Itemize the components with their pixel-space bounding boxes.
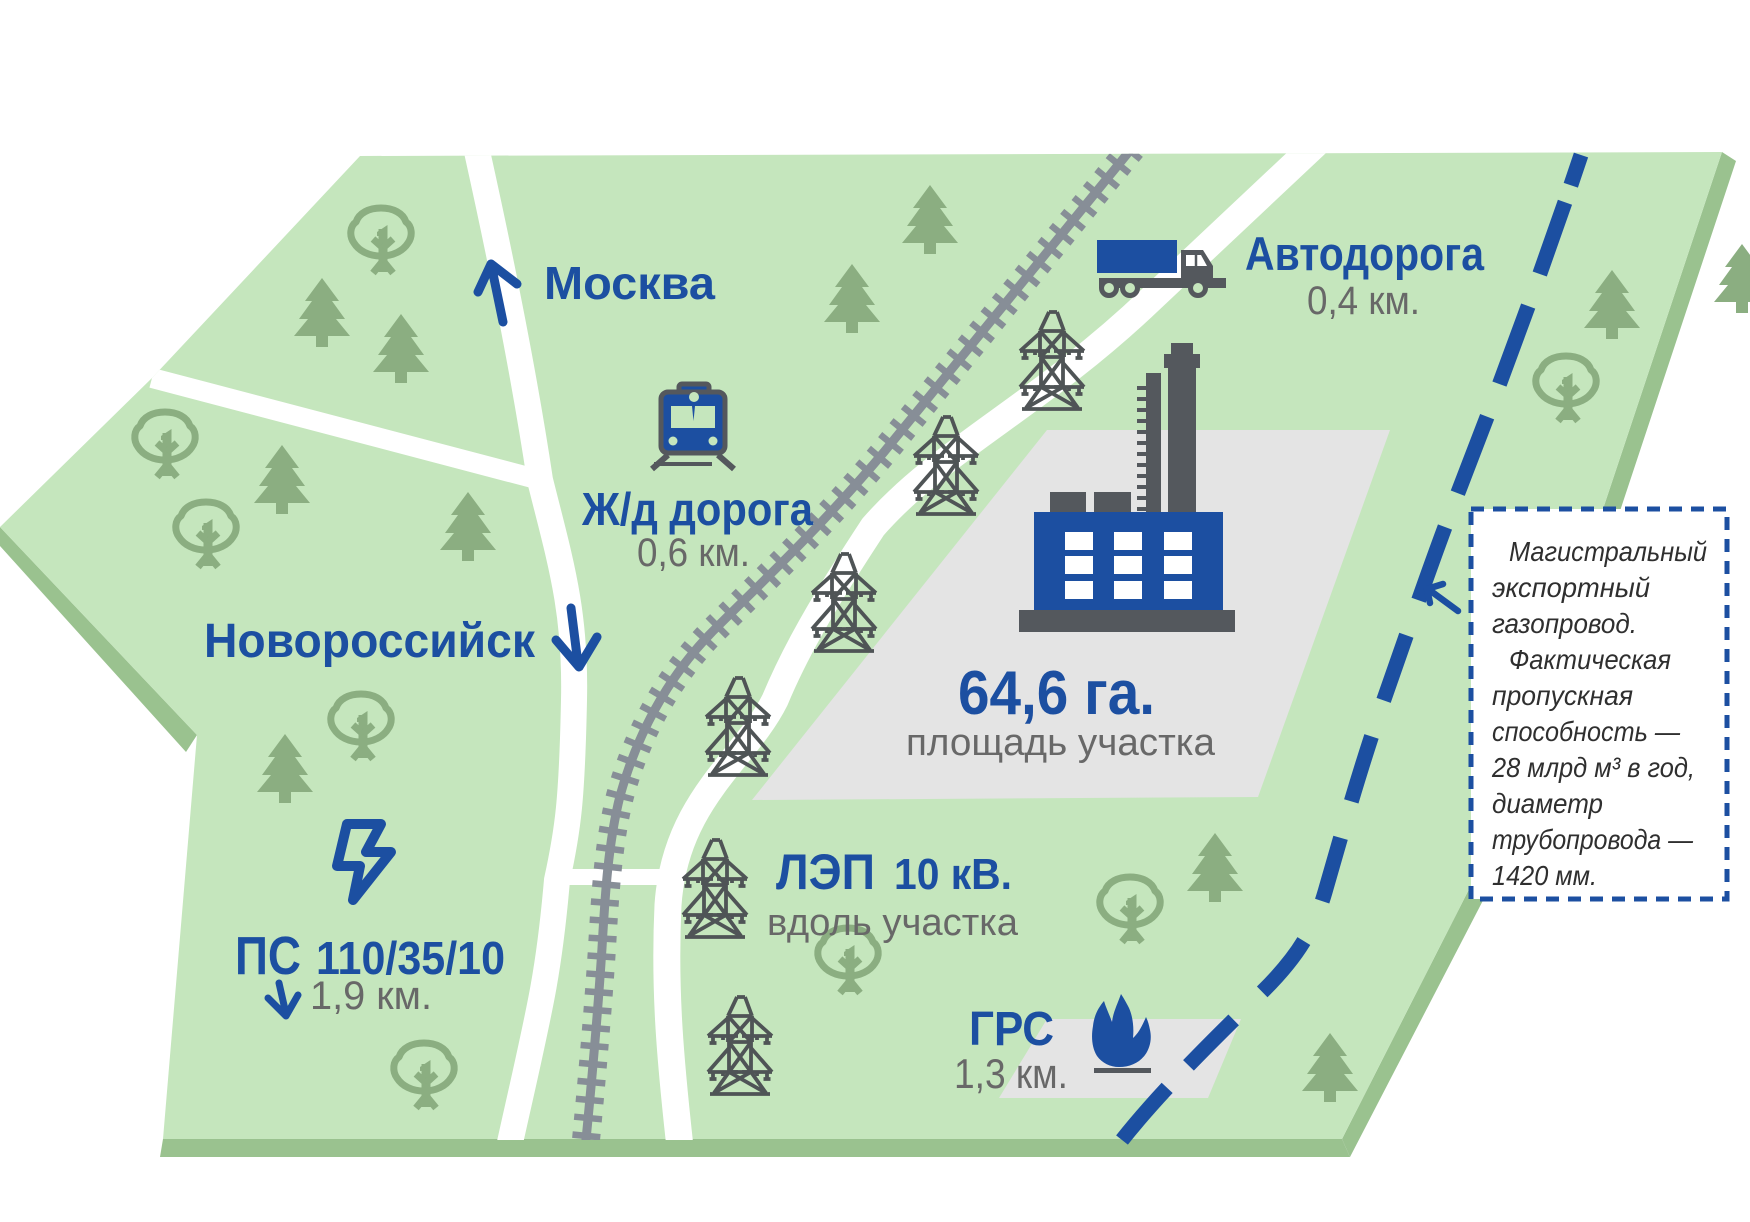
svg-text:экспортный: экспортный	[1492, 572, 1650, 603]
svg-text:Москва: Москва	[544, 257, 715, 309]
svg-text:диаметр: диаметр	[1492, 788, 1603, 819]
svg-text:способность —: способность —	[1492, 716, 1681, 747]
svg-text:Новороссийск: Новороссийск	[204, 615, 536, 668]
svg-text:64,6 га.: 64,6 га.	[958, 659, 1155, 728]
svg-text:Фактическая: Фактическая	[1509, 644, 1671, 675]
svg-text:1420 мм.: 1420 мм.	[1492, 860, 1597, 891]
svg-text:1,3 км.: 1,3 км.	[954, 1050, 1068, 1097]
svg-text:0,6 км.: 0,6 км.	[637, 531, 750, 575]
svg-text:10 кВ.: 10 кВ.	[894, 850, 1012, 899]
svg-text:трубопровода —: трубопровода —	[1492, 824, 1694, 855]
svg-text:пропускная: пропускная	[1492, 680, 1633, 711]
svg-text:площадь участка: площадь участка	[906, 722, 1216, 764]
svg-text:ЛЭП: ЛЭП	[776, 844, 875, 900]
svg-text:вдоль участка: вдоль участка	[767, 902, 1019, 944]
svg-text:газопровод.: газопровод.	[1492, 608, 1637, 639]
svg-text:28 млрд м³ в год,: 28 млрд м³ в год,	[1491, 752, 1695, 783]
svg-text:ГРС: ГРС	[969, 1003, 1054, 1056]
svg-text:1,9 км.: 1,9 км.	[310, 974, 432, 1018]
svg-text:Автодорога: Автодорога	[1245, 227, 1485, 280]
svg-text:ПС: ПС	[235, 926, 301, 986]
svg-text:0,4 км.: 0,4 км.	[1307, 279, 1420, 323]
svg-text:Ж/д дорога: Ж/д дорога	[581, 483, 813, 535]
svg-text:Магистральный: Магистральный	[1509, 536, 1707, 567]
